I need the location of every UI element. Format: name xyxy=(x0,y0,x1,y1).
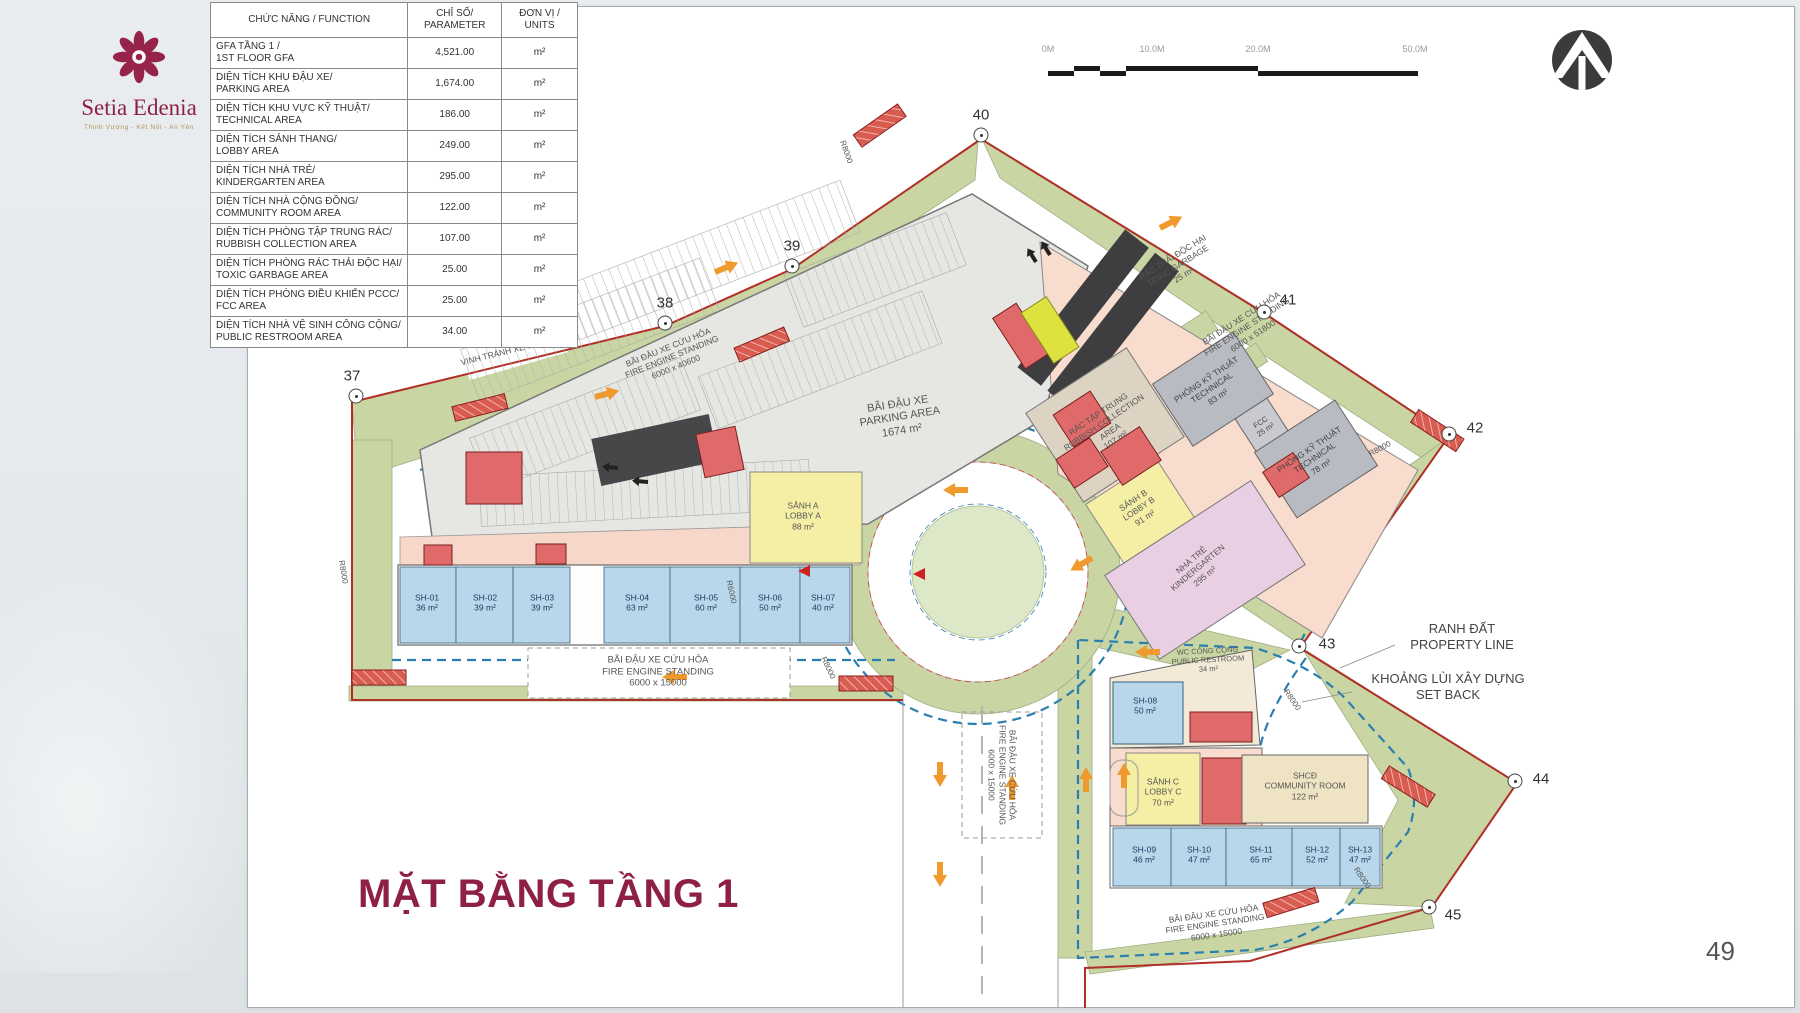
plan-label: SH-11 65 m² xyxy=(1249,845,1272,866)
scale-label: 0M xyxy=(1042,44,1055,54)
table-cell: DIỆN TÍCH PHÒNG TẬP TRUNG RÁC/ RUBBISH C… xyxy=(211,224,408,255)
boundary-marker-number: 40 xyxy=(973,107,990,124)
plan-label: SH-08 50 m² xyxy=(1133,696,1157,717)
boundary-marker-number: 42 xyxy=(1467,420,1484,437)
table-row: DIỆN TÍCH PHÒNG RÁC THẢI ĐỘC HẠI/ TOXIC … xyxy=(211,255,578,286)
table-cell: DIỆN TÍCH KHU VỰC KỸ THUẬT/ TECHNICAL AR… xyxy=(211,100,408,131)
plan-label: SH-09 46 m² xyxy=(1132,845,1156,866)
table-cell: m² xyxy=(502,100,578,131)
table-row: DIỆN TÍCH NHÀ CỘNG ĐỒNG/ COMMUNITY ROOM … xyxy=(211,193,578,224)
plan-label: BÃI ĐẬU XE CỨU HỎA FIRE ENGINE STANDING … xyxy=(602,655,714,690)
plan-label: PHÒNG KỸ THUẬT TECHNICAL 78 m² xyxy=(1275,424,1355,492)
table-cell: m² xyxy=(502,286,578,317)
boundary-marker xyxy=(1422,900,1437,915)
page-number: 49 xyxy=(1706,936,1735,967)
boundary-marker-number: 41 xyxy=(1280,292,1297,309)
table-cell: 186.00 xyxy=(408,100,502,131)
table-cell: m² xyxy=(502,255,578,286)
table-row: DIỆN TÍCH NHÀ TRẺ/ KINDERGARTEN AREA295.… xyxy=(211,162,578,193)
boundary-marker xyxy=(1508,774,1523,789)
table-cell: m² xyxy=(502,38,578,69)
plan-label: FCC 25 m² xyxy=(1250,413,1276,439)
table-cell: DIỆN TÍCH NHÀ TRẺ/ KINDERGARTEN AREA xyxy=(211,162,408,193)
boundary-marker xyxy=(785,259,800,274)
table-cell: DIỆN TÍCH KHU ĐẬU XE/ PARKING AREA xyxy=(211,69,408,100)
table-cell: 4,521.00 xyxy=(408,38,502,69)
boundary-marker-number: 44 xyxy=(1533,771,1550,788)
boundary-marker xyxy=(349,389,364,404)
table-row: DIỆN TÍCH PHÒNG TẬP TRUNG RÁC/ RUBBISH C… xyxy=(211,224,578,255)
plan-label: R8000 xyxy=(1281,688,1303,713)
table-cell: m² xyxy=(502,69,578,100)
boundary-marker-number: 38 xyxy=(657,295,674,312)
plan-label: SH-06 50 m² xyxy=(758,593,782,614)
plan-label: BÃI ĐẬU XE CỨU HỎA FIRE ENGINE STANDING … xyxy=(986,725,1017,825)
table-cell: m² xyxy=(502,131,578,162)
scale-label: 10.0M xyxy=(1139,44,1164,54)
plan-label: BÃI ĐẬU XE CỨU HỎA FIRE ENGINE STANDING … xyxy=(620,324,724,390)
plan-label: SH-10 47 m² xyxy=(1187,845,1211,866)
plan-label: SẢNH B LOBBY B 91 m² xyxy=(1115,486,1162,532)
table-cell: DIỆN TÍCH PHÒNG RÁC THẢI ĐỘC HẠI/ TOXIC … xyxy=(211,255,408,286)
table-cell: 295.00 xyxy=(408,162,502,193)
table-header-cell: ĐƠN VỊ / UNITS xyxy=(502,3,578,38)
scale-bar-graphic xyxy=(1040,64,1435,80)
boundary-marker xyxy=(1292,639,1307,654)
plan-label: R8000 xyxy=(819,655,838,680)
slide-page: Setia Edenia Thịnh Vượng - Kết Nối - An … xyxy=(0,0,1800,1013)
table-cell: DIỆN TÍCH NHÀ VỆ SINH CÔNG CỘNG/ PUBLIC … xyxy=(211,317,408,348)
plan-label: RANH ĐẤT PROPERTY LINE xyxy=(1410,621,1514,653)
boundary-marker xyxy=(658,316,673,331)
plan-label: KHOẢNG LÙI XÂY DỰNG SET BACK xyxy=(1371,671,1524,703)
plan-label: BÃI ĐẬU XE PARKING AREA 1674 m² xyxy=(857,392,943,444)
table-cell: 25.00 xyxy=(408,255,502,286)
table-cell: 25.00 xyxy=(408,286,502,317)
plan-label: RÁC THẢI ĐỘC HẠI TOXIC GARBAGE 25 m² xyxy=(1137,232,1219,299)
table-cell: DIỆN TÍCH PHÒNG ĐIỀU KHIỂN PCCC/ FCC ARE… xyxy=(211,286,408,317)
table-row: DIỆN TÍCH PHÒNG ĐIỀU KHIỂN PCCC/ FCC ARE… xyxy=(211,286,578,317)
table-row: GFA TẦNG 1 / 1ST FLOOR GFA4,521.00m² xyxy=(211,38,578,69)
plan-label: SH-03 39 m² xyxy=(530,593,554,614)
boundary-marker xyxy=(974,128,989,143)
plan-label: SHCĐ COMMUNITY ROOM 122 m² xyxy=(1264,770,1345,801)
table-row: DIỆN TÍCH NHÀ VỆ SINH CÔNG CỘNG/ PUBLIC … xyxy=(211,317,578,348)
boundary-marker xyxy=(1257,305,1272,320)
table-row: DIỆN TÍCH KHU VỰC KỸ THUẬT/ TECHNICAL AR… xyxy=(211,100,578,131)
plan-label: SH-01 36 m² xyxy=(415,593,439,614)
table-header-row: CHỨC NĂNG / FUNCTIONCHỈ SỐ/ PARAMETERĐƠN… xyxy=(211,3,578,38)
plan-label: SH-04 63 m² xyxy=(625,593,649,614)
table-cell: 107.00 xyxy=(408,224,502,255)
plan-label: R8000 xyxy=(837,139,854,164)
plan-label: SH-12 52 m² xyxy=(1305,845,1329,866)
boundary-marker-number: 45 xyxy=(1445,907,1462,924)
scale-label: 20.0M xyxy=(1245,44,1270,54)
boundary-marker-number: 37 xyxy=(344,368,361,385)
boundary-marker-number: 43 xyxy=(1319,636,1336,653)
table-cell: 249.00 xyxy=(408,131,502,162)
table-cell: 34.00 xyxy=(408,317,502,348)
table-row: DIỆN TÍCH SẢNH THANG/ LOBBY AREA249.00m² xyxy=(211,131,578,162)
plan-label: R8000 xyxy=(336,560,350,585)
plan-label: RÁC TẬP TRUNG RUBBISH COLLECTION AREA 10… xyxy=(1056,383,1157,470)
plan-label: NHÀ TRẺ KINDERGARTEN 295 m² xyxy=(1162,534,1234,601)
plan-label: SẢNH A LOBBY A 88 m² xyxy=(785,500,821,531)
table-cell: m² xyxy=(502,162,578,193)
table-cell: 1,674.00 xyxy=(408,69,502,100)
plan-label: R8000 xyxy=(1351,866,1373,891)
table-cell: 122.00 xyxy=(408,193,502,224)
plan-label: SH-13 47 m² xyxy=(1348,845,1372,866)
plan-label: R6000 xyxy=(724,579,738,604)
plan-label: SH-05 60 m² xyxy=(694,593,718,614)
plan-label: SH-02 39 m² xyxy=(473,593,497,614)
plan-label: WC CÔNG CỘNG PUBLIC RESTROOM 34 m² xyxy=(1171,644,1245,675)
table-cell: DIỆN TÍCH SẢNH THANG/ LOBBY AREA xyxy=(211,131,408,162)
scale-bar: 0M10.0M20.0M50.0M xyxy=(1040,44,1435,84)
table-cell: DIỆN TÍCH NHÀ CỘNG ĐỒNG/ COMMUNITY ROOM … xyxy=(211,193,408,224)
area-table: CHỨC NĂNG / FUNCTIONCHỈ SỐ/ PARAMETERĐƠN… xyxy=(210,2,578,348)
north-arrow-icon xyxy=(1548,26,1616,94)
scale-bar-labels: 0M10.0M20.0M50.0M xyxy=(1040,44,1435,58)
page-title: MẶT BẰNG TẦNG 1 xyxy=(358,872,739,917)
table-cell: m² xyxy=(502,224,578,255)
table-cell: m² xyxy=(502,317,578,348)
plan-label: BÃI ĐẬU XE CỨU HỎA FIRE ENGINE STANDING … xyxy=(1163,902,1266,947)
plan-label: R8000 xyxy=(1367,439,1392,459)
plan-label: SẢNH C LOBBY C 70 m² xyxy=(1145,776,1182,807)
table-row: DIỆN TÍCH KHU ĐẬU XE/ PARKING AREA1,674.… xyxy=(211,69,578,100)
scale-label: 50.0M xyxy=(1402,44,1427,54)
table-cell: GFA TẦNG 1 / 1ST FLOOR GFA xyxy=(211,38,408,69)
table-header-cell: CHỨC NĂNG / FUNCTION xyxy=(211,3,408,38)
boundary-marker xyxy=(1442,427,1457,442)
table-header-cell: CHỈ SỐ/ PARAMETER xyxy=(408,3,502,38)
boundary-marker-number: 39 xyxy=(784,238,801,255)
table-cell: m² xyxy=(502,193,578,224)
plan-label: SH-07 40 m² xyxy=(811,593,835,614)
